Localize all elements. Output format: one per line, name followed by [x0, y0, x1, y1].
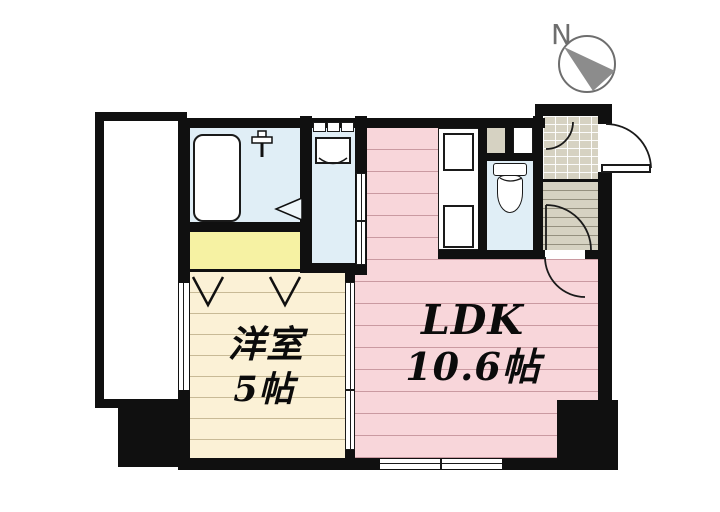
kitchen-stove [443, 205, 474, 248]
compass-label: N [551, 18, 572, 51]
hall-door-opening [545, 250, 585, 259]
shelf [513, 126, 533, 155]
washer-shelf-2 [327, 122, 340, 132]
laundry-door-line [361, 174, 362, 264]
bathtub-icon [193, 134, 241, 222]
entrance-tile [543, 116, 598, 180]
western-room-floor [190, 272, 345, 460]
wall-toilet-right [533, 116, 543, 250]
pillar-bottom-left [118, 405, 185, 467]
window-south-tick [440, 459, 442, 469]
laundry-door-split [357, 220, 365, 222]
storage-box [485, 126, 505, 155]
kitchen-sink [443, 133, 474, 171]
window-west-line [183, 283, 184, 390]
wall-hall-bottom [438, 250, 612, 259]
western-room-size: 5帖 [190, 372, 338, 407]
hallway [543, 182, 598, 250]
window-west [179, 283, 189, 390]
washer-shelf-3 [341, 122, 354, 132]
window-south [380, 459, 502, 469]
divider-top-seg [345, 272, 355, 282]
floor-plan: N 洋室 5帖 LDK 10.6帖 [0, 0, 720, 512]
sliding-partition-split [346, 389, 354, 391]
wall-toilet-left [478, 122, 487, 250]
entrance-hall-line [543, 179, 598, 182]
washer-shelf-1 [313, 122, 326, 132]
pillar-bottom-right [557, 400, 618, 468]
divider-bottom-seg [345, 450, 355, 458]
closet-front-line [185, 269, 304, 272]
wall-bath-bottom [185, 222, 312, 232]
sliding-partition [345, 282, 355, 450]
ldk-name: LDK [385, 300, 560, 341]
wall-bath-laundry [300, 116, 312, 272]
closet [188, 232, 302, 270]
washing-machine-icon [315, 137, 351, 164]
front-door-leaf [601, 164, 651, 173]
front-door-arc [606, 124, 651, 168]
wall-storage-bottom [487, 153, 533, 161]
balcony [104, 121, 178, 399]
laundry-sliding-door [356, 173, 366, 265]
western-room-name: 洋室 [190, 326, 342, 363]
compass-needle-icon [564, 47, 615, 91]
ldk-size: 10.6帖 [378, 348, 568, 386]
sliding-partition-line [350, 283, 351, 449]
